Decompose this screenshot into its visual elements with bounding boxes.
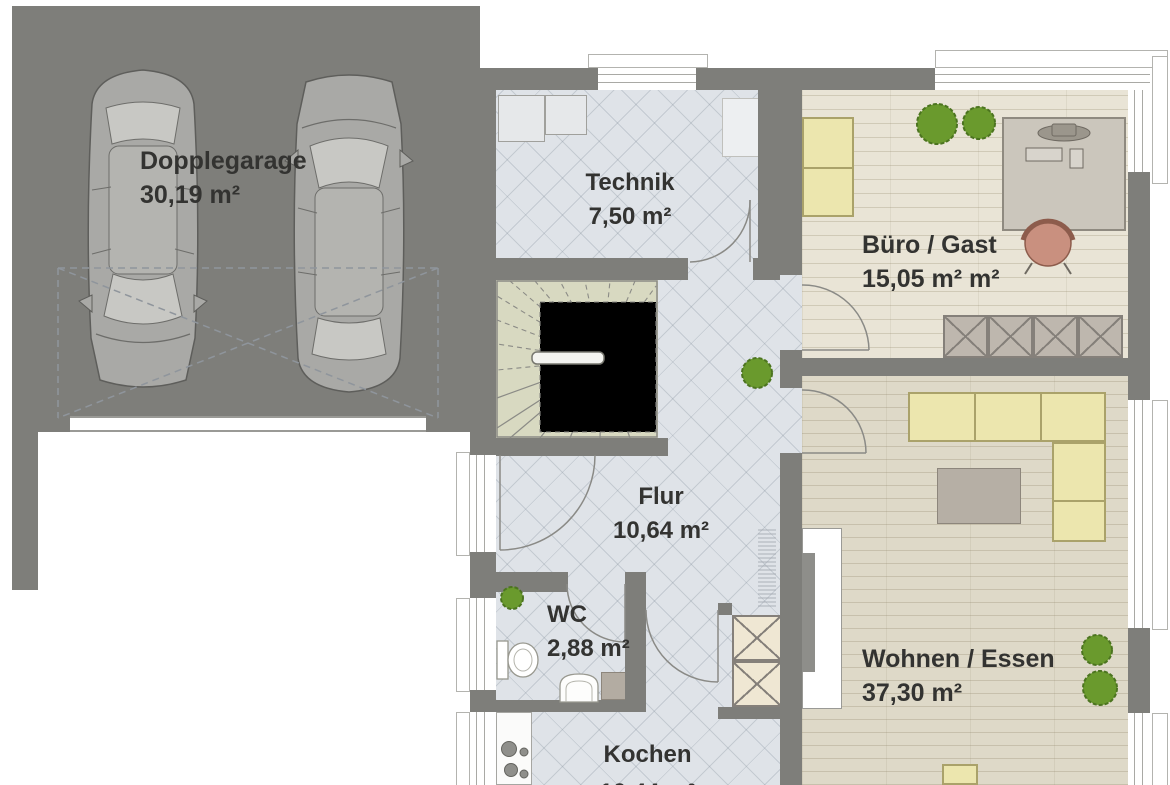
living-sofa-top [908,392,1106,442]
entrance-door-opening [470,455,496,552]
wc-window [470,598,496,690]
room-label-wc: WC 2,88 m² [547,598,630,666]
room-area: 37,30 m² [862,676,1055,710]
technik-window [598,68,696,90]
hall-wardrobe [732,615,782,661]
room-label-technik: Technik 7,50 m² [570,166,690,234]
office-corner-window-sill-top [935,50,1168,68]
office-corner-window-top [935,68,1150,90]
room-area: 10,44 m² [590,776,705,785]
technik-cabinet [498,95,545,142]
room-label-garage: Dopplegarage 30,19 m² [140,144,307,212]
room-area: 2,88 m² [547,632,630,666]
room-label-buero: Büro / Gast 15,05 m² m² [862,228,1000,296]
garage-door [70,416,426,432]
hall-wardrobe [732,661,782,707]
garage-left-wall-stub [12,432,38,590]
wc-window-sill [456,598,470,692]
living-window-lower-sill [1152,713,1168,785]
fireplace-chimney [802,553,815,672]
technik-cabinet-small [545,95,587,135]
dining-chair [942,764,978,785]
spine-wall-mid [780,350,802,388]
office-sideboard [988,315,1033,358]
right-wall-mid [1128,628,1150,713]
stair-bottom-wall [496,438,668,456]
living-sofa-right [1052,442,1106,542]
room-name: Dopplegarage [140,144,307,178]
room-name: WC [547,598,630,632]
room-label-wohnen: Wohnen / Essen 37,30 m² [862,642,1055,710]
room-label-flur: Flur 10,64 m² [606,480,716,548]
room-area: 7,50 m² [570,200,690,234]
office-sofa [802,117,854,217]
wc-appliance [601,672,627,700]
technik-window-sill [588,54,708,68]
office-sideboard [943,315,988,358]
room-label-kochen: Kochen 10,44 m² [590,738,705,785]
kitchen-window [470,712,496,785]
room-name: Wohnen / Essen [862,642,1055,676]
right-wall-upper [1128,172,1150,400]
technik-right-wall [758,68,780,280]
wc-bottom-wall [470,700,646,712]
kitchen-window-sill [456,712,470,785]
room-name: Kochen [590,738,705,772]
living-window-upper-sill [1152,400,1168,630]
office-corner-window-sill-right [1152,56,1168,184]
room-area: 10,64 m² [606,514,716,548]
technik-bottom-wall-right [753,258,780,280]
living-window-upper [1128,400,1150,628]
office-corner-window-right [1128,90,1150,172]
kochen-door-stub [718,603,732,615]
office-sideboard [1078,315,1123,358]
house-top-wall [470,68,935,90]
room-name: Flur [606,480,716,514]
office-desk [1002,117,1126,231]
office-living-divider-wall [802,358,1128,376]
spine-wall-upper [780,68,802,275]
room-name: Büro / Gast [862,228,1000,262]
floor-plan: Dopplegarage 30,19 m² Technik 7,50 m² Bü… [0,0,1170,785]
kitchen-counter [496,712,532,785]
technik-bottom-wall-left [496,258,688,280]
wc-top-wall [496,572,568,592]
room-area: 30,19 m² [140,178,307,212]
garage-outer-wall [12,6,480,432]
living-window-lower [1128,713,1150,785]
spine-wall-lower [780,453,802,785]
office-sideboard [1033,315,1078,358]
room-area: 15,05 m² m² [862,262,1000,296]
entrance-porch-sill [456,452,470,556]
wardrobe-bottom-wall [718,707,802,719]
staircase-floor [496,280,658,438]
room-name: Technik [570,166,690,200]
coffee-table [937,468,1021,524]
